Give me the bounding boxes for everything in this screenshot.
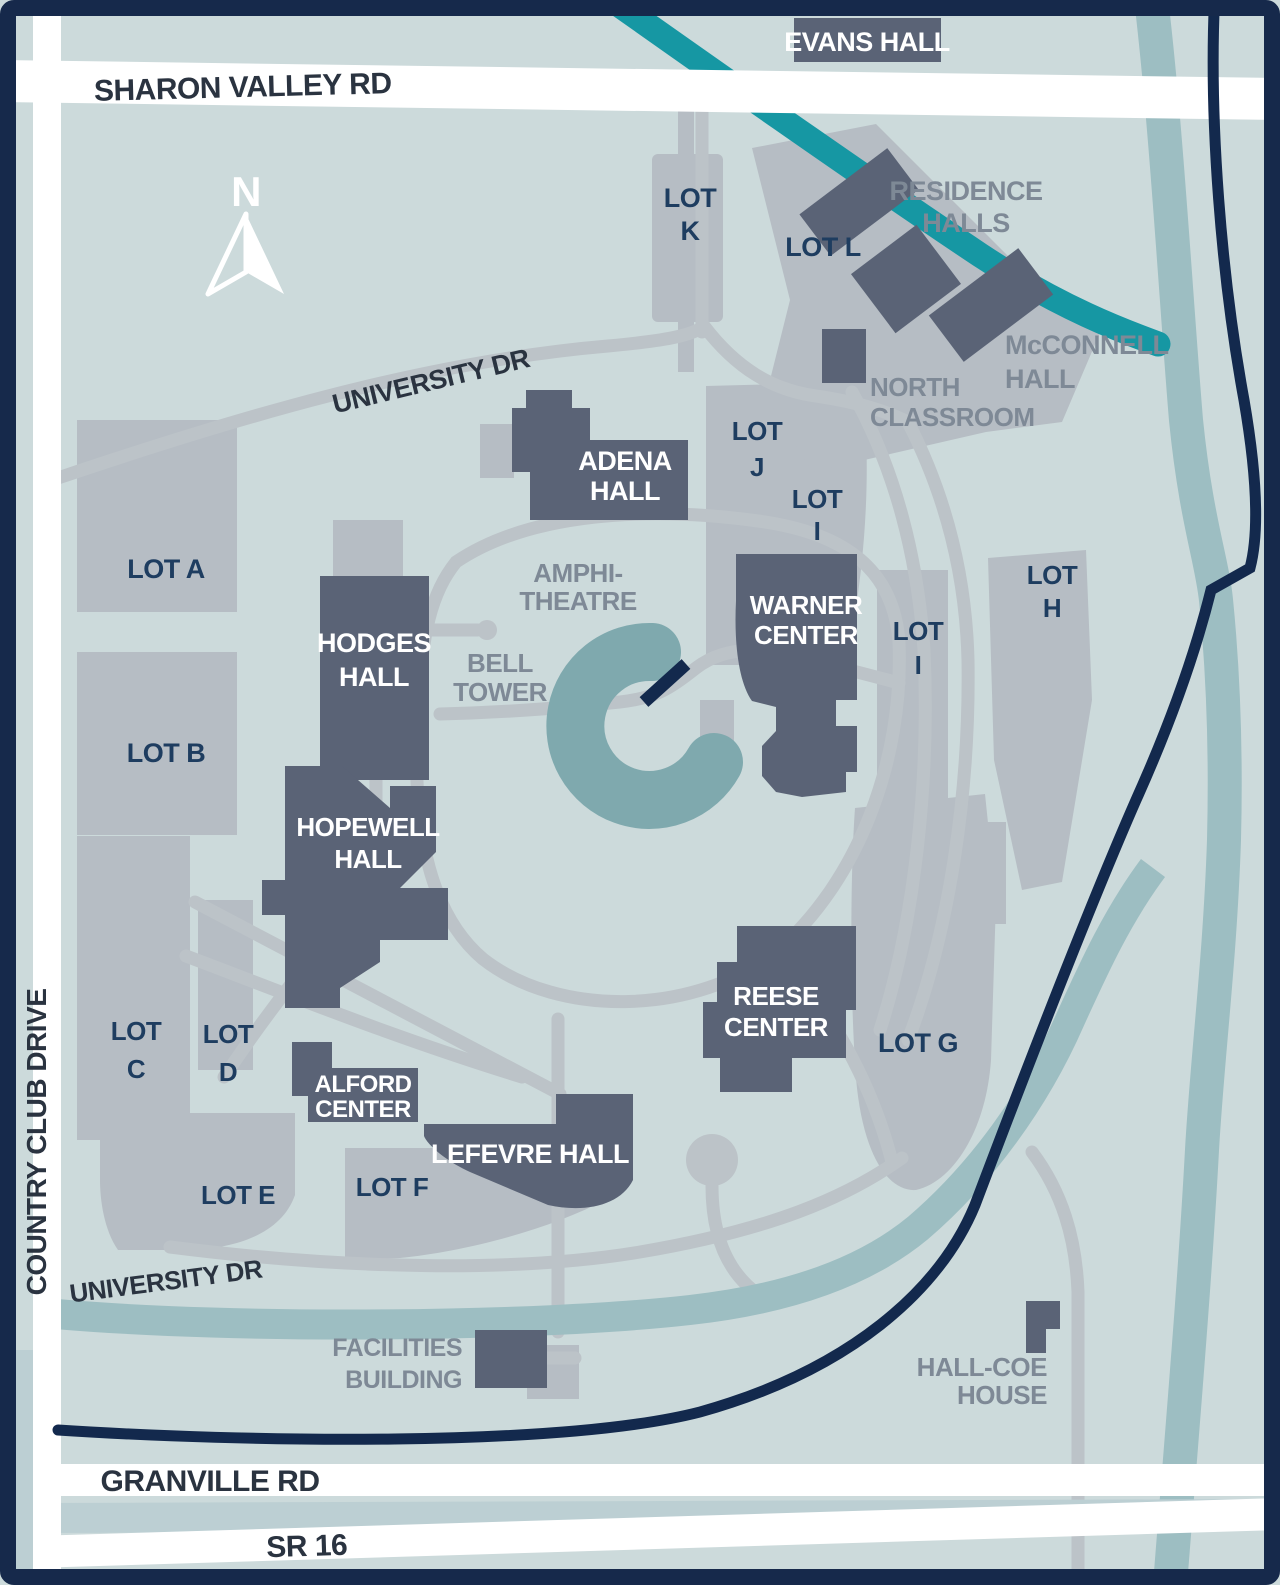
label-lot-f: LOT F xyxy=(356,1172,429,1202)
label-lot-c-l2: C xyxy=(127,1054,146,1084)
label-lot-b: LOT B xyxy=(127,738,206,768)
label-adena-l1: ADENA xyxy=(578,446,672,476)
building-facilities xyxy=(475,1330,547,1388)
label-lot-a: LOT A xyxy=(127,554,205,584)
campus-map-page: N SHARON VALLEY RD COUNTRY CLUB DRIVE GR… xyxy=(0,0,1280,1585)
label-granville-rd: GRANVILLE RD xyxy=(101,1465,320,1498)
lot-c xyxy=(77,836,190,1140)
label-residence-l2: HALLS xyxy=(922,208,1010,238)
label-lot-h-l2: H xyxy=(1043,593,1061,623)
label-lot-i-lower-l2: I xyxy=(915,650,922,680)
label-north-classroom-l1: NORTH xyxy=(870,372,960,402)
road-country-club-drive xyxy=(33,0,61,1585)
label-lot-k-l2: K xyxy=(681,216,701,246)
roundabout xyxy=(686,1134,738,1186)
label-bell-tower-l2: TOWER xyxy=(453,677,548,707)
label-mcconnell-l2: HALL xyxy=(1005,364,1075,394)
label-hopewell-l1: HOPEWELL xyxy=(296,812,440,842)
label-lot-k-l1: LOT xyxy=(664,183,717,213)
label-alford-l2: CENTER xyxy=(315,1096,411,1123)
label-residence-l1: RESIDENCE xyxy=(889,176,1042,206)
label-sr-16: SR 16 xyxy=(266,1529,348,1565)
label-evans-hall: EVANS HALL xyxy=(784,27,950,57)
building-north-classroom xyxy=(822,329,866,383)
label-lot-j-l1: LOT xyxy=(732,416,783,446)
adena-annex xyxy=(480,424,514,478)
north-arrow-label: N xyxy=(231,168,261,215)
bell-tower-dot xyxy=(477,620,497,640)
label-lot-i-upper-l2: I xyxy=(814,516,821,546)
label-lot-l: LOT L xyxy=(785,232,860,262)
label-lot-i-lower-l1: LOT xyxy=(893,616,944,646)
label-warner-l2: CENTER xyxy=(754,620,859,650)
label-hopewell-l2: HALL xyxy=(334,844,402,874)
label-north-classroom-l2: CLASSROOM xyxy=(870,402,1035,432)
label-lot-d-l2: D xyxy=(219,1057,237,1087)
label-lot-c-l1: LOT xyxy=(111,1016,162,1046)
campus-map: N SHARON VALLEY RD COUNTRY CLUB DRIVE GR… xyxy=(0,0,1280,1585)
label-facilities-l1: FACILITIES xyxy=(332,1334,462,1362)
label-lot-g: LOT G xyxy=(878,1028,958,1058)
label-amphitheatre-l2: THEATRE xyxy=(519,586,637,616)
label-lot-j-l2: J xyxy=(750,452,764,482)
label-lefevre: LEFEVRE HALL xyxy=(431,1139,629,1169)
label-facilities-l2: BUILDING xyxy=(345,1366,462,1394)
label-hall-coe-l1: HALL-COE xyxy=(917,1352,1047,1382)
label-alford-l1: ALFORD xyxy=(315,1071,412,1098)
label-reese-l1: REESE xyxy=(733,981,819,1011)
label-hodges-l1: HODGES xyxy=(317,628,431,658)
building-adena-step xyxy=(526,390,572,408)
label-adena-l2: HALL xyxy=(590,476,660,506)
label-lot-h-l1: LOT xyxy=(1027,560,1078,590)
label-amphitheatre-l1: AMPHI- xyxy=(533,558,622,588)
label-warner-l1: WARNER xyxy=(750,590,863,620)
label-hall-coe-l2: HOUSE xyxy=(957,1380,1047,1410)
label-reese-l2: CENTER xyxy=(724,1012,829,1042)
label-lot-d-l1: LOT xyxy=(203,1019,254,1049)
label-lot-i-upper-l1: LOT xyxy=(792,484,843,514)
label-hodges-l2: HALL xyxy=(339,662,409,692)
label-bell-tower-l1: BELL xyxy=(467,648,534,678)
label-lot-e: LOT E xyxy=(201,1180,275,1210)
label-mcconnell-l1: McCONNELL xyxy=(1005,330,1169,360)
hodges-annex xyxy=(333,520,403,576)
label-country-club-drive: COUNTRY CLUB DRIVE xyxy=(21,989,52,1296)
